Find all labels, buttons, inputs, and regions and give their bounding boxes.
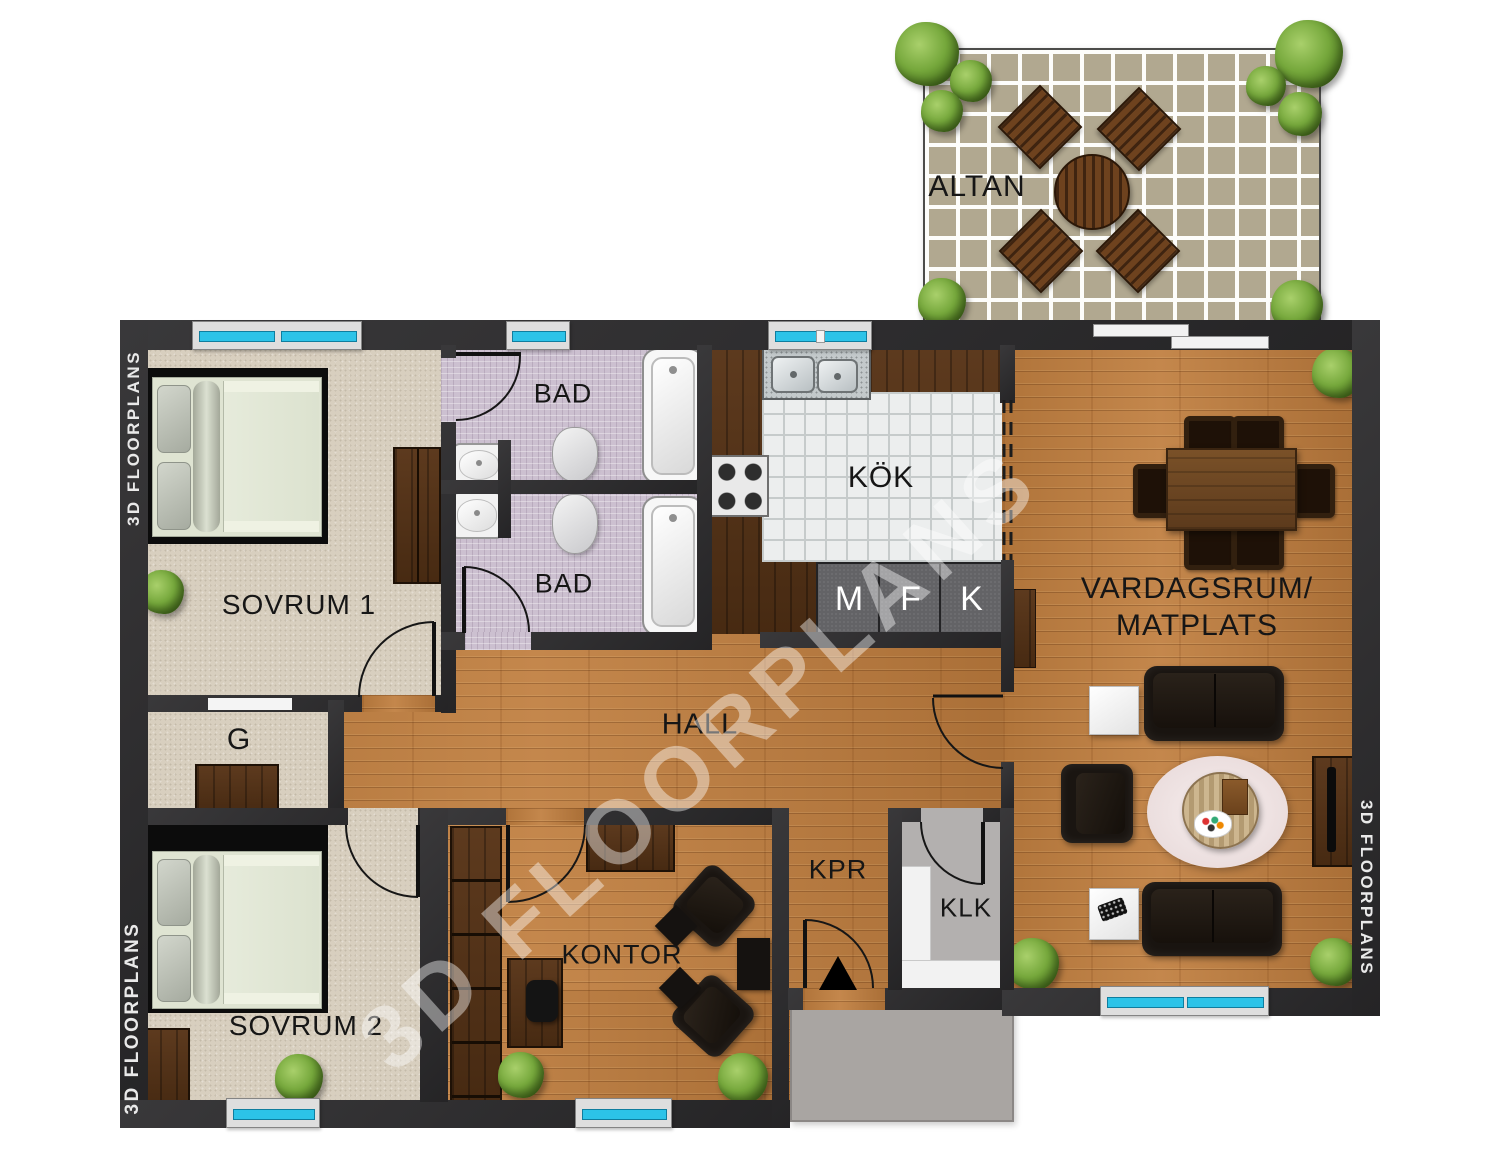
window-glass	[582, 1109, 667, 1120]
tv-bench	[1312, 756, 1357, 867]
bush	[1275, 20, 1343, 88]
room-label-bad2: BAD	[535, 569, 594, 600]
toilet	[552, 494, 598, 554]
bathtub	[642, 348, 704, 484]
klk-door-opening	[921, 808, 983, 822]
klk-shelf	[901, 866, 931, 966]
wall-klk-right	[1000, 808, 1014, 990]
wall-bad-divider	[441, 480, 711, 494]
bad1-door-opening	[441, 358, 456, 422]
klk-shelf	[901, 960, 1003, 989]
dining-chair	[1232, 526, 1284, 570]
bed-mattress	[223, 855, 319, 1004]
room-label-bad1: BAD	[534, 379, 593, 410]
edge-brand-right: 3D FLOORPLANS	[1356, 800, 1376, 976]
entrance-door-opening	[803, 988, 885, 1010]
side-table-black	[737, 938, 770, 990]
wall-kok-right-stub	[1000, 345, 1015, 403]
sofa	[1144, 666, 1284, 741]
sideboard	[1012, 589, 1036, 668]
window-glass	[233, 1109, 315, 1120]
room-label-sovrum1: SOVRUM 1	[222, 589, 376, 621]
bad2-door-opening	[465, 632, 531, 650]
food-plate	[1194, 810, 1232, 838]
toilet	[552, 427, 598, 482]
bush	[1278, 92, 1322, 136]
dining-chair	[1184, 526, 1236, 570]
bed-pillow	[157, 462, 191, 530]
sofa	[1142, 882, 1282, 956]
window-kontor	[575, 1098, 672, 1128]
bed-pillow	[157, 859, 191, 926]
room-label-altan: ALTAN	[928, 170, 1025, 204]
stove	[710, 455, 769, 517]
window-bad1	[506, 321, 570, 350]
bed-blanket-roll	[193, 855, 220, 1004]
bathroom-sink	[450, 492, 504, 539]
dresser	[195, 764, 279, 814]
plant	[1310, 938, 1358, 986]
dining-table	[1166, 448, 1297, 531]
wall-garderob-right	[328, 700, 344, 822]
dresser	[142, 1028, 190, 1108]
bed-mattress	[223, 381, 319, 532]
patio-table	[1054, 154, 1130, 230]
entry-pad	[790, 1008, 1014, 1122]
plant	[1007, 938, 1059, 990]
plant	[275, 1054, 323, 1102]
plant	[498, 1052, 544, 1098]
wall-kontor-right	[772, 808, 789, 1128]
wall-sink-stub	[498, 440, 511, 538]
plant	[718, 1053, 768, 1103]
bush	[918, 278, 966, 326]
window-glass	[512, 331, 566, 342]
window-glass	[1187, 997, 1264, 1008]
wall-exterior-bottom-left	[120, 1100, 790, 1128]
room-label-kpr: KPR	[809, 855, 868, 886]
edge-brand-left-top: 3D FLOORPLANS	[124, 350, 144, 526]
sovrum1-door-opening	[362, 695, 435, 712]
table-tray	[1222, 779, 1248, 815]
window-kok	[768, 321, 872, 350]
wall-hall-living-upper	[1001, 560, 1014, 692]
sovrum2-door-opening	[348, 808, 418, 825]
patio-sliding-door	[1091, 322, 1269, 350]
window-glass	[281, 331, 357, 342]
window-sovrum1	[192, 321, 362, 350]
room-label-klk: KLK	[940, 893, 992, 924]
window-glass	[1107, 997, 1184, 1008]
wardrobe	[393, 447, 441, 584]
window-sovrum2	[226, 1098, 320, 1128]
kitchen-sink-unit	[762, 348, 871, 400]
window-mullion	[816, 330, 825, 343]
window-glass	[199, 331, 275, 342]
sink-basin	[771, 356, 815, 393]
window-vardagsrum	[1100, 986, 1269, 1016]
double-bed	[152, 851, 322, 1009]
room-label-garderob: G	[227, 723, 251, 757]
room-label-kontor: KONTOR	[561, 940, 682, 971]
armchair	[1061, 764, 1133, 843]
bush	[921, 90, 963, 132]
bathtub	[642, 496, 704, 636]
wall-kok-left	[697, 345, 712, 650]
dining-chair	[1293, 464, 1335, 518]
sink-basin	[817, 359, 858, 393]
bed-blanket-roll	[193, 381, 220, 532]
side-table	[1089, 686, 1139, 735]
office-chair	[526, 980, 558, 1022]
sliding-panel	[1171, 336, 1269, 349]
bed-pillow	[157, 385, 191, 453]
room-label-kok: KÖK	[848, 461, 914, 495]
tv	[1327, 767, 1336, 852]
room-label-vardagsrum-line1: VARDAGSRUM/	[1081, 572, 1313, 606]
floorplan-canvas: M F K	[0, 0, 1500, 1172]
bush	[1246, 66, 1286, 106]
room-label-vardagsrum-line2: MATPLATS	[1116, 609, 1278, 643]
bed-pillow	[157, 935, 191, 1002]
wall-hall-living-lower	[1001, 762, 1014, 812]
wall-klk-left	[888, 808, 902, 990]
double-bed	[152, 377, 322, 537]
garderob-opening	[208, 698, 292, 710]
edge-brand-left-bottom: 3D FLOORPLANS	[122, 922, 144, 1115]
